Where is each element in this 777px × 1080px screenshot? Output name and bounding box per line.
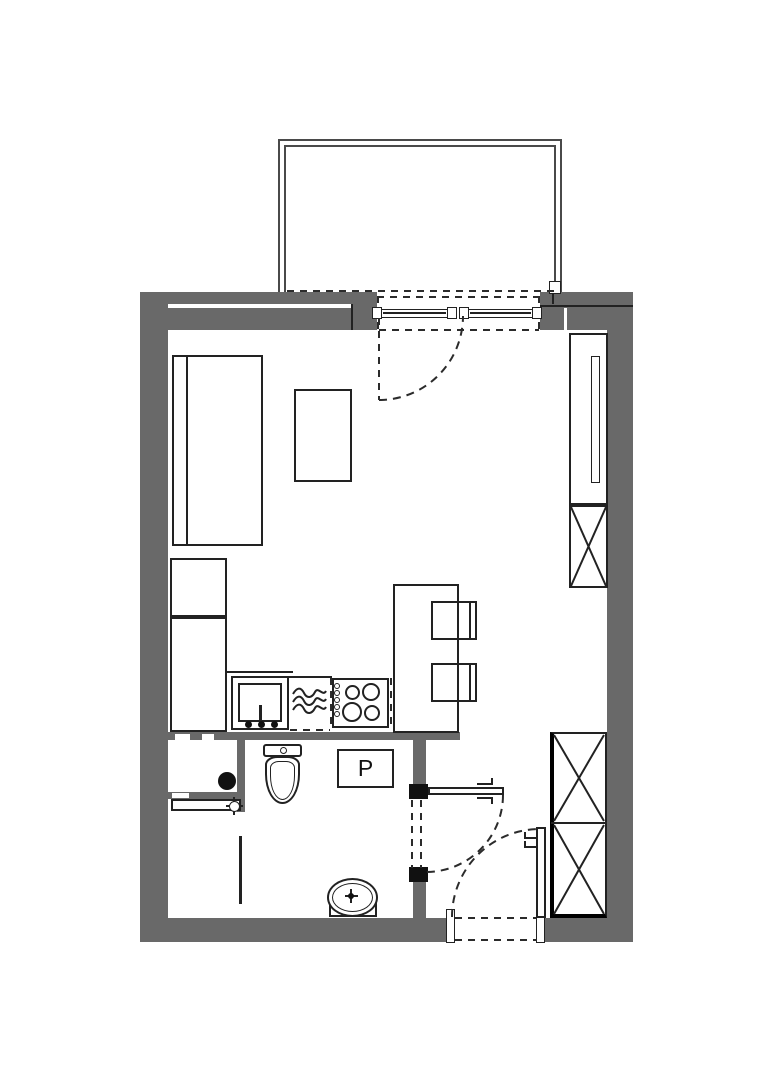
counter-back-line <box>227 671 293 673</box>
stove-burner-2 <box>362 683 380 701</box>
window-dashed-top <box>377 296 540 298</box>
bathroom-right-wall-upper <box>413 740 426 785</box>
window-end-cap-2 <box>447 307 457 319</box>
washbasin-faucet <box>348 893 354 899</box>
counter-dashed-end <box>390 678 392 728</box>
bathroom-door-post-top <box>409 784 428 799</box>
left-wall <box>140 292 168 942</box>
sink-knob-3 <box>271 721 278 728</box>
top-wall-layer-line <box>168 304 351 308</box>
shower-screen <box>239 836 242 904</box>
dishwasher-top-line <box>289 676 332 678</box>
shower-valve <box>229 801 240 812</box>
entrance-threshold-dash-bottom <box>455 939 537 941</box>
window-panel-right-midline <box>470 312 531 314</box>
balcony-edge-dashed-line <box>287 290 557 292</box>
wall-vent-notch-2 <box>202 734 214 740</box>
balcony-door-open-leaf <box>378 318 380 400</box>
window-panel-left <box>381 309 448 318</box>
toilet-flush-button <box>280 747 287 754</box>
entrance-door-handle-1-stub <box>524 832 526 839</box>
washing-machine-label: P <box>339 751 392 786</box>
entrance-door-handle-2-stub <box>524 841 526 848</box>
bathroom-right-wall-lower <box>413 882 426 918</box>
stove-burner-1 <box>345 685 360 700</box>
entrance-threshold-dash-top <box>455 917 537 919</box>
bathroom-door-handle-bottom-stub <box>491 797 493 804</box>
entrance-door-swing-arc <box>452 829 540 917</box>
entrance-door-leaf <box>536 827 546 918</box>
wardrobe-top <box>569 333 608 505</box>
bathroom-door-closed-dash-2 <box>420 800 422 868</box>
stove-knob-3 <box>334 697 340 703</box>
wardrobe-bottom <box>550 732 607 918</box>
bathroom-door-swing-arc <box>426 795 503 872</box>
stove-burner-3 <box>342 702 362 722</box>
window-panel-left-midline <box>383 312 446 314</box>
bottom-wall-left <box>140 918 448 942</box>
sink-knob-2 <box>258 721 265 728</box>
top-wall-right-layer-line <box>540 305 633 307</box>
wall-vent-notch-3 <box>172 793 189 798</box>
dining-table <box>393 584 459 733</box>
window-panel-right <box>468 309 533 318</box>
stove-knob-1 <box>334 683 340 689</box>
sink-knob-1 <box>245 721 252 728</box>
window-end-cap-4 <box>532 307 542 319</box>
wardrobe-bottom-divider <box>551 822 606 824</box>
top-wall-joint-line <box>351 304 353 330</box>
window-dashed-bottom <box>379 329 539 331</box>
entrance-door-handle-2 <box>524 846 538 848</box>
bathroom-door-post-bottom <box>409 867 428 882</box>
balcony-downpipe <box>549 281 561 294</box>
stove-knob-2 <box>334 690 340 696</box>
kitchen-cabinet-lower <box>170 617 227 732</box>
dishwasher-dashed-bottom <box>290 729 330 731</box>
entrance-jamb-left <box>446 909 455 943</box>
bed-headboard-line <box>186 357 188 544</box>
balcony-downpipe-tick <box>552 294 554 304</box>
entrance-door-handle-1 <box>524 837 538 839</box>
bathroom-door-closed-dash-1 <box>411 800 413 868</box>
coffee-table <box>294 389 352 482</box>
right-wall <box>607 330 633 942</box>
washing-machine-box: P <box>337 749 394 788</box>
bottom-wall-right <box>538 918 633 942</box>
floor-plan: P <box>0 0 777 1080</box>
stove <box>332 678 389 728</box>
stove-knob-5 <box>334 711 340 717</box>
wardrobe-top-x-cell <box>569 505 608 588</box>
stove-burner-4 <box>364 705 380 721</box>
kitchen-cabinet-upper <box>170 558 227 617</box>
bathroom-door-handle-top-stub <box>491 778 493 785</box>
balcony-inner-rail <box>284 145 556 292</box>
top-wall-right-joint <box>564 308 567 330</box>
dishwasher-wave-icon <box>293 689 326 713</box>
top-wall-left <box>140 292 377 330</box>
floor-drain <box>218 772 236 790</box>
wall-vent-notch-1 <box>175 734 190 740</box>
wardrobe-sliding-track <box>591 356 600 483</box>
bathroom-door-leaf <box>428 787 504 795</box>
stove-knob-4 <box>334 704 340 710</box>
